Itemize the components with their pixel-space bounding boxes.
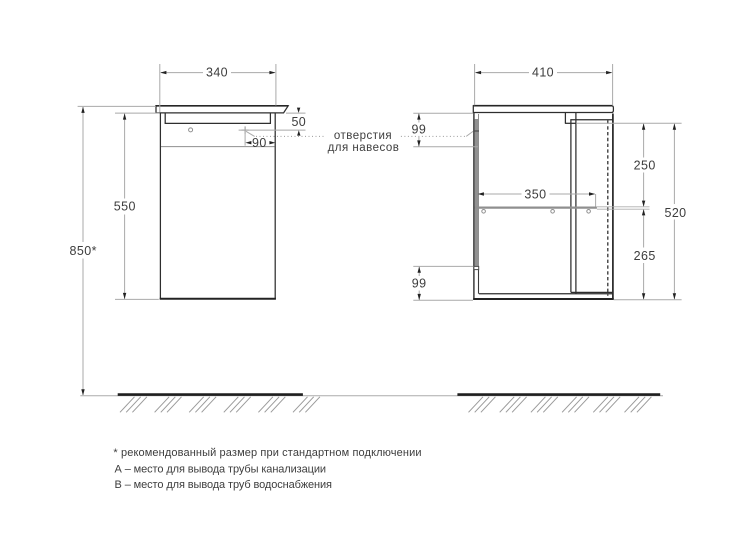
svg-text:90: 90	[252, 136, 267, 150]
svg-text:В – место для вывода труб водо: В – место для вывода труб водоснабжения	[115, 479, 333, 491]
svg-text:99: 99	[412, 123, 427, 137]
svg-text:250: 250	[634, 159, 656, 173]
svg-text:350: 350	[524, 187, 546, 201]
svg-text:для навесов: для навесов	[328, 142, 400, 154]
svg-text:410: 410	[532, 65, 554, 79]
svg-text:520: 520	[664, 206, 686, 220]
svg-text:А – место для вывода трубы кан: А – место для вывода трубы канализации	[115, 463, 326, 475]
svg-text:* рекомендованный размер при с: * рекомендованный размер при стандартном…	[113, 447, 421, 459]
svg-text:отверстия: отверстия	[334, 130, 392, 142]
svg-text:850*: 850*	[70, 244, 97, 258]
svg-text:265: 265	[634, 249, 656, 263]
svg-text:340: 340	[206, 65, 228, 79]
svg-text:99: 99	[412, 276, 427, 290]
svg-text:50: 50	[291, 115, 306, 129]
svg-text:550: 550	[114, 199, 136, 213]
